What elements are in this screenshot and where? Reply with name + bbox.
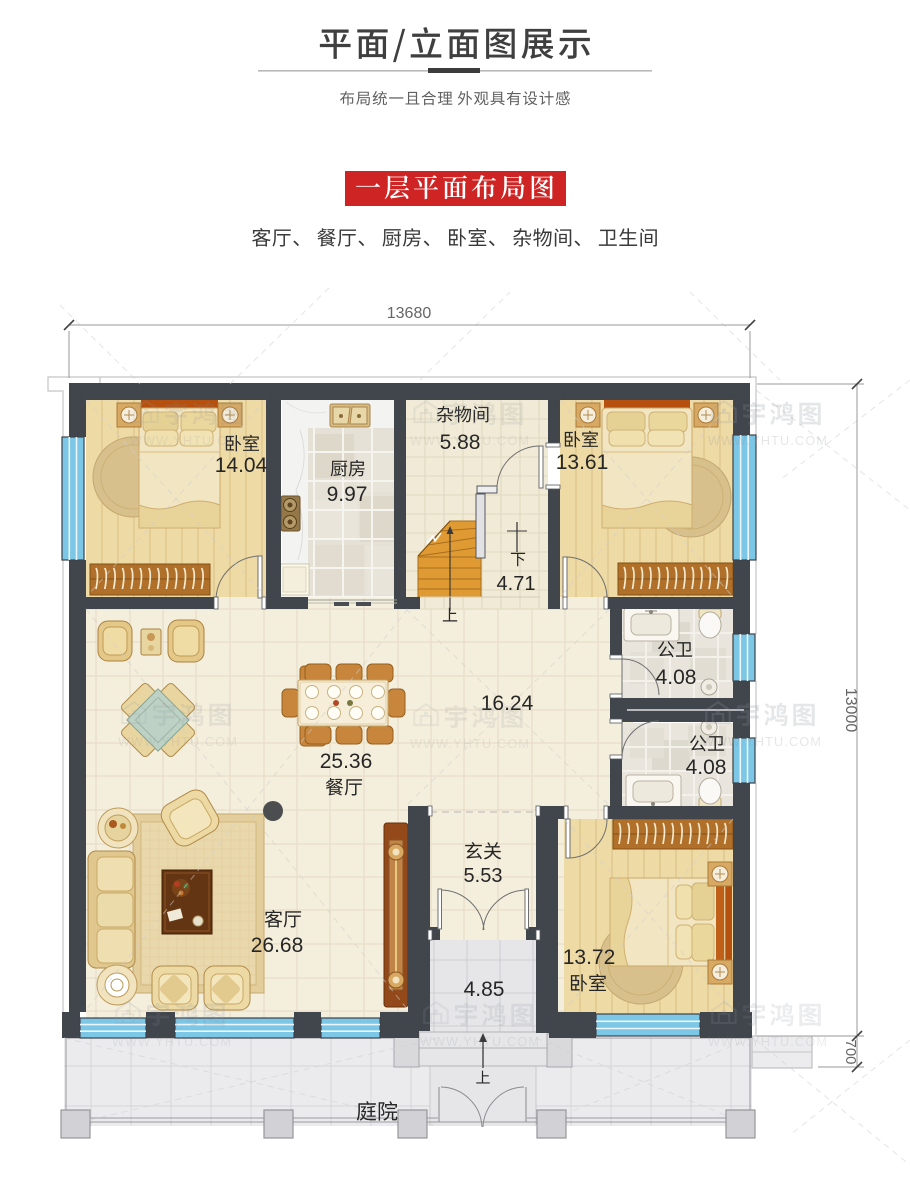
svg-text:14.04: 14.04	[215, 454, 268, 477]
svg-text:9.97: 9.97	[327, 483, 368, 506]
svg-text:WWW.YHTU.COM: WWW.YHTU.COM	[420, 1035, 540, 1049]
svg-text:WWW.YHTU.COM: WWW.YHTU.COM	[708, 1035, 828, 1049]
svg-text:WWW.YHTU.COM: WWW.YHTU.COM	[130, 434, 250, 448]
svg-text:WWW.YHTU.COM: WWW.YHTU.COM	[112, 1035, 232, 1049]
svg-text:4.08: 4.08	[686, 756, 727, 779]
svg-text:4.71: 4.71	[497, 573, 536, 595]
svg-text:5.53: 5.53	[464, 865, 503, 887]
svg-text:25.36: 25.36	[320, 750, 373, 773]
svg-text:4.08: 4.08	[656, 666, 697, 689]
svg-text:WWW.YHTU.COM: WWW.YHTU.COM	[410, 737, 530, 751]
svg-text:WWW.YHTU.COM: WWW.YHTU.COM	[118, 735, 238, 749]
svg-text:26.68: 26.68	[251, 934, 304, 957]
svg-text:WWW.YHTU.COM: WWW.YHTU.COM	[410, 434, 530, 448]
svg-text:WWW.YHTU.COM: WWW.YHTU.COM	[702, 735, 822, 749]
svg-text:WWW.YHTU.COM: WWW.YHTU.COM	[708, 434, 828, 448]
svg-text:13000: 13000	[842, 688, 859, 733]
svg-text:700: 700	[842, 1039, 859, 1064]
svg-text:13680: 13680	[387, 305, 432, 322]
svg-text:13.61: 13.61	[556, 451, 609, 474]
svg-text:13.72: 13.72	[563, 946, 616, 969]
svg-text:4.85: 4.85	[464, 978, 505, 1001]
